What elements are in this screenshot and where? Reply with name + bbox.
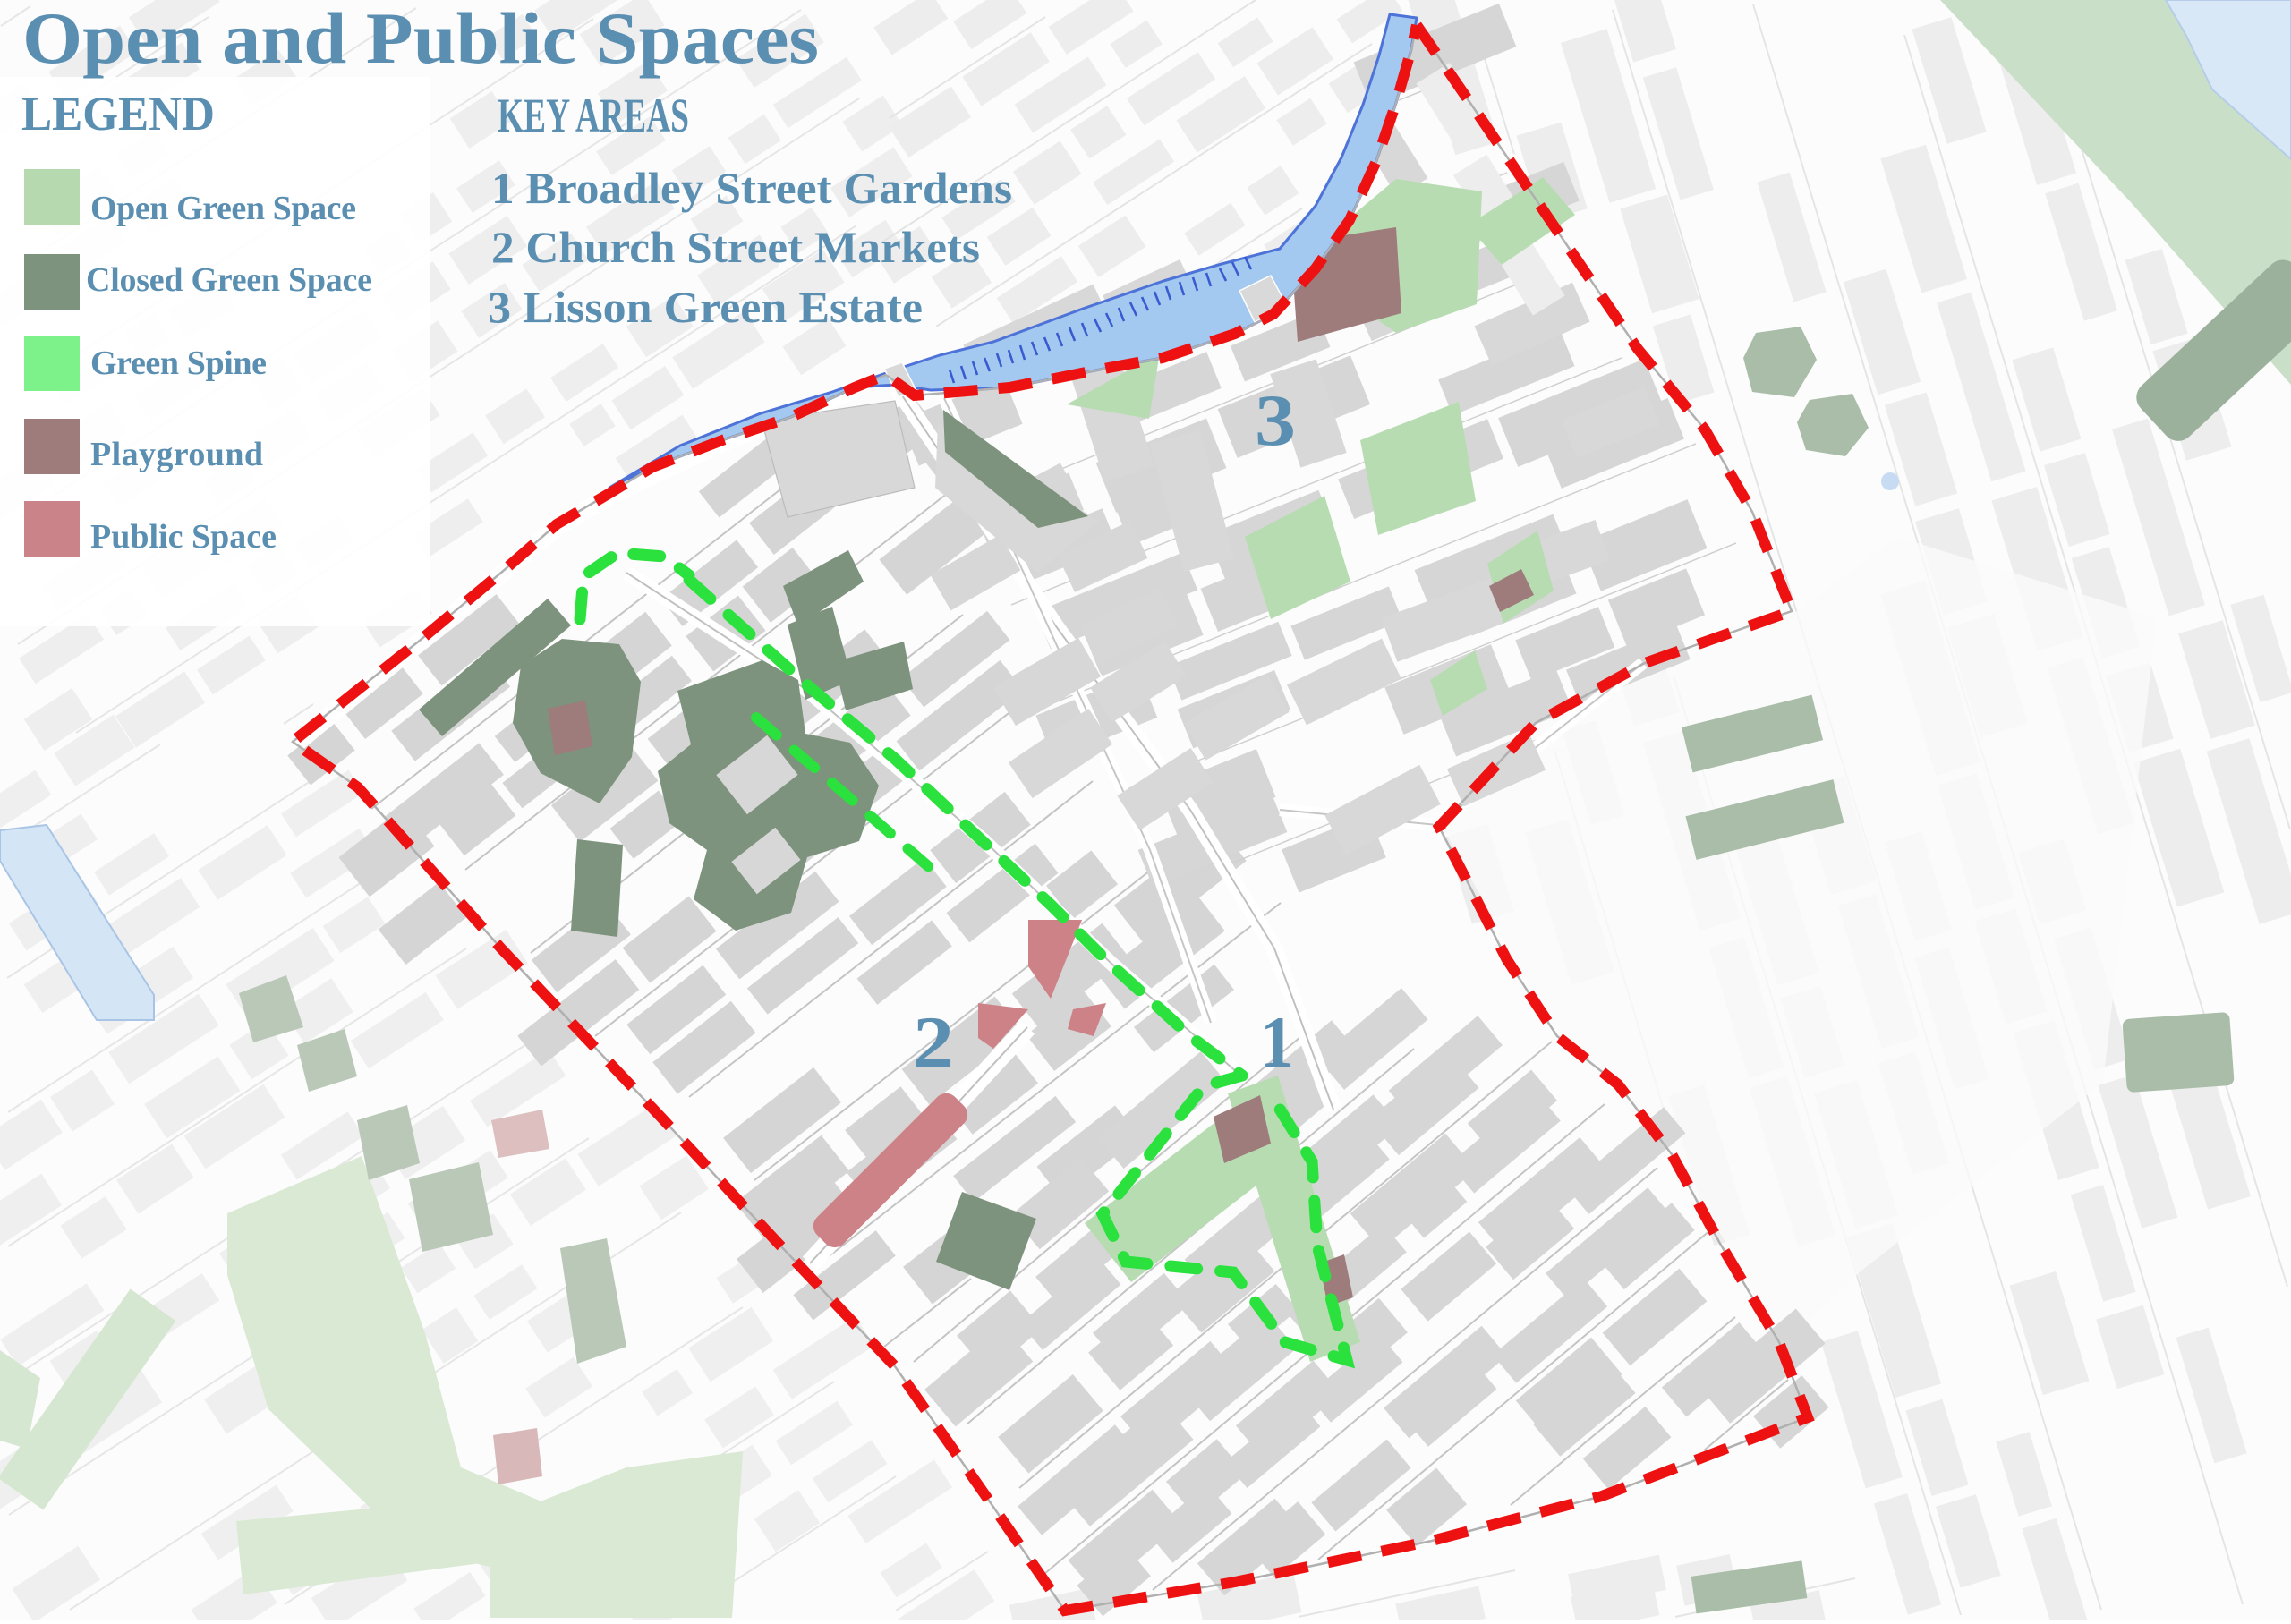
svg-text:3: 3 [1255, 379, 1296, 461]
svg-text:Green Spine: Green Spine [90, 344, 267, 382]
svg-text:LEGEND: LEGEND [21, 87, 215, 140]
svg-text:1: 1 [1260, 1001, 1294, 1083]
svg-text:Closed Green Space: Closed Green Space [86, 261, 372, 299]
svg-text:Public Space: Public Space [90, 518, 277, 556]
svg-text:2 Church Street Markets: 2 Church Street Markets [491, 222, 980, 272]
svg-text:KEY AREAS: KEY AREAS [498, 89, 689, 142]
svg-text:Playground: Playground [90, 436, 263, 473]
svg-text:2: 2 [913, 1001, 954, 1083]
svg-text:3 Lisson Green Estate: 3 Lisson Green Estate [488, 282, 923, 332]
svg-text:Open Green Space: Open Green Space [90, 190, 356, 227]
svg-text:1 Broadley Street Gardens: 1 Broadley Street Gardens [491, 163, 1012, 213]
svg-text:Open and Public Spaces: Open and Public Spaces [22, 0, 819, 79]
